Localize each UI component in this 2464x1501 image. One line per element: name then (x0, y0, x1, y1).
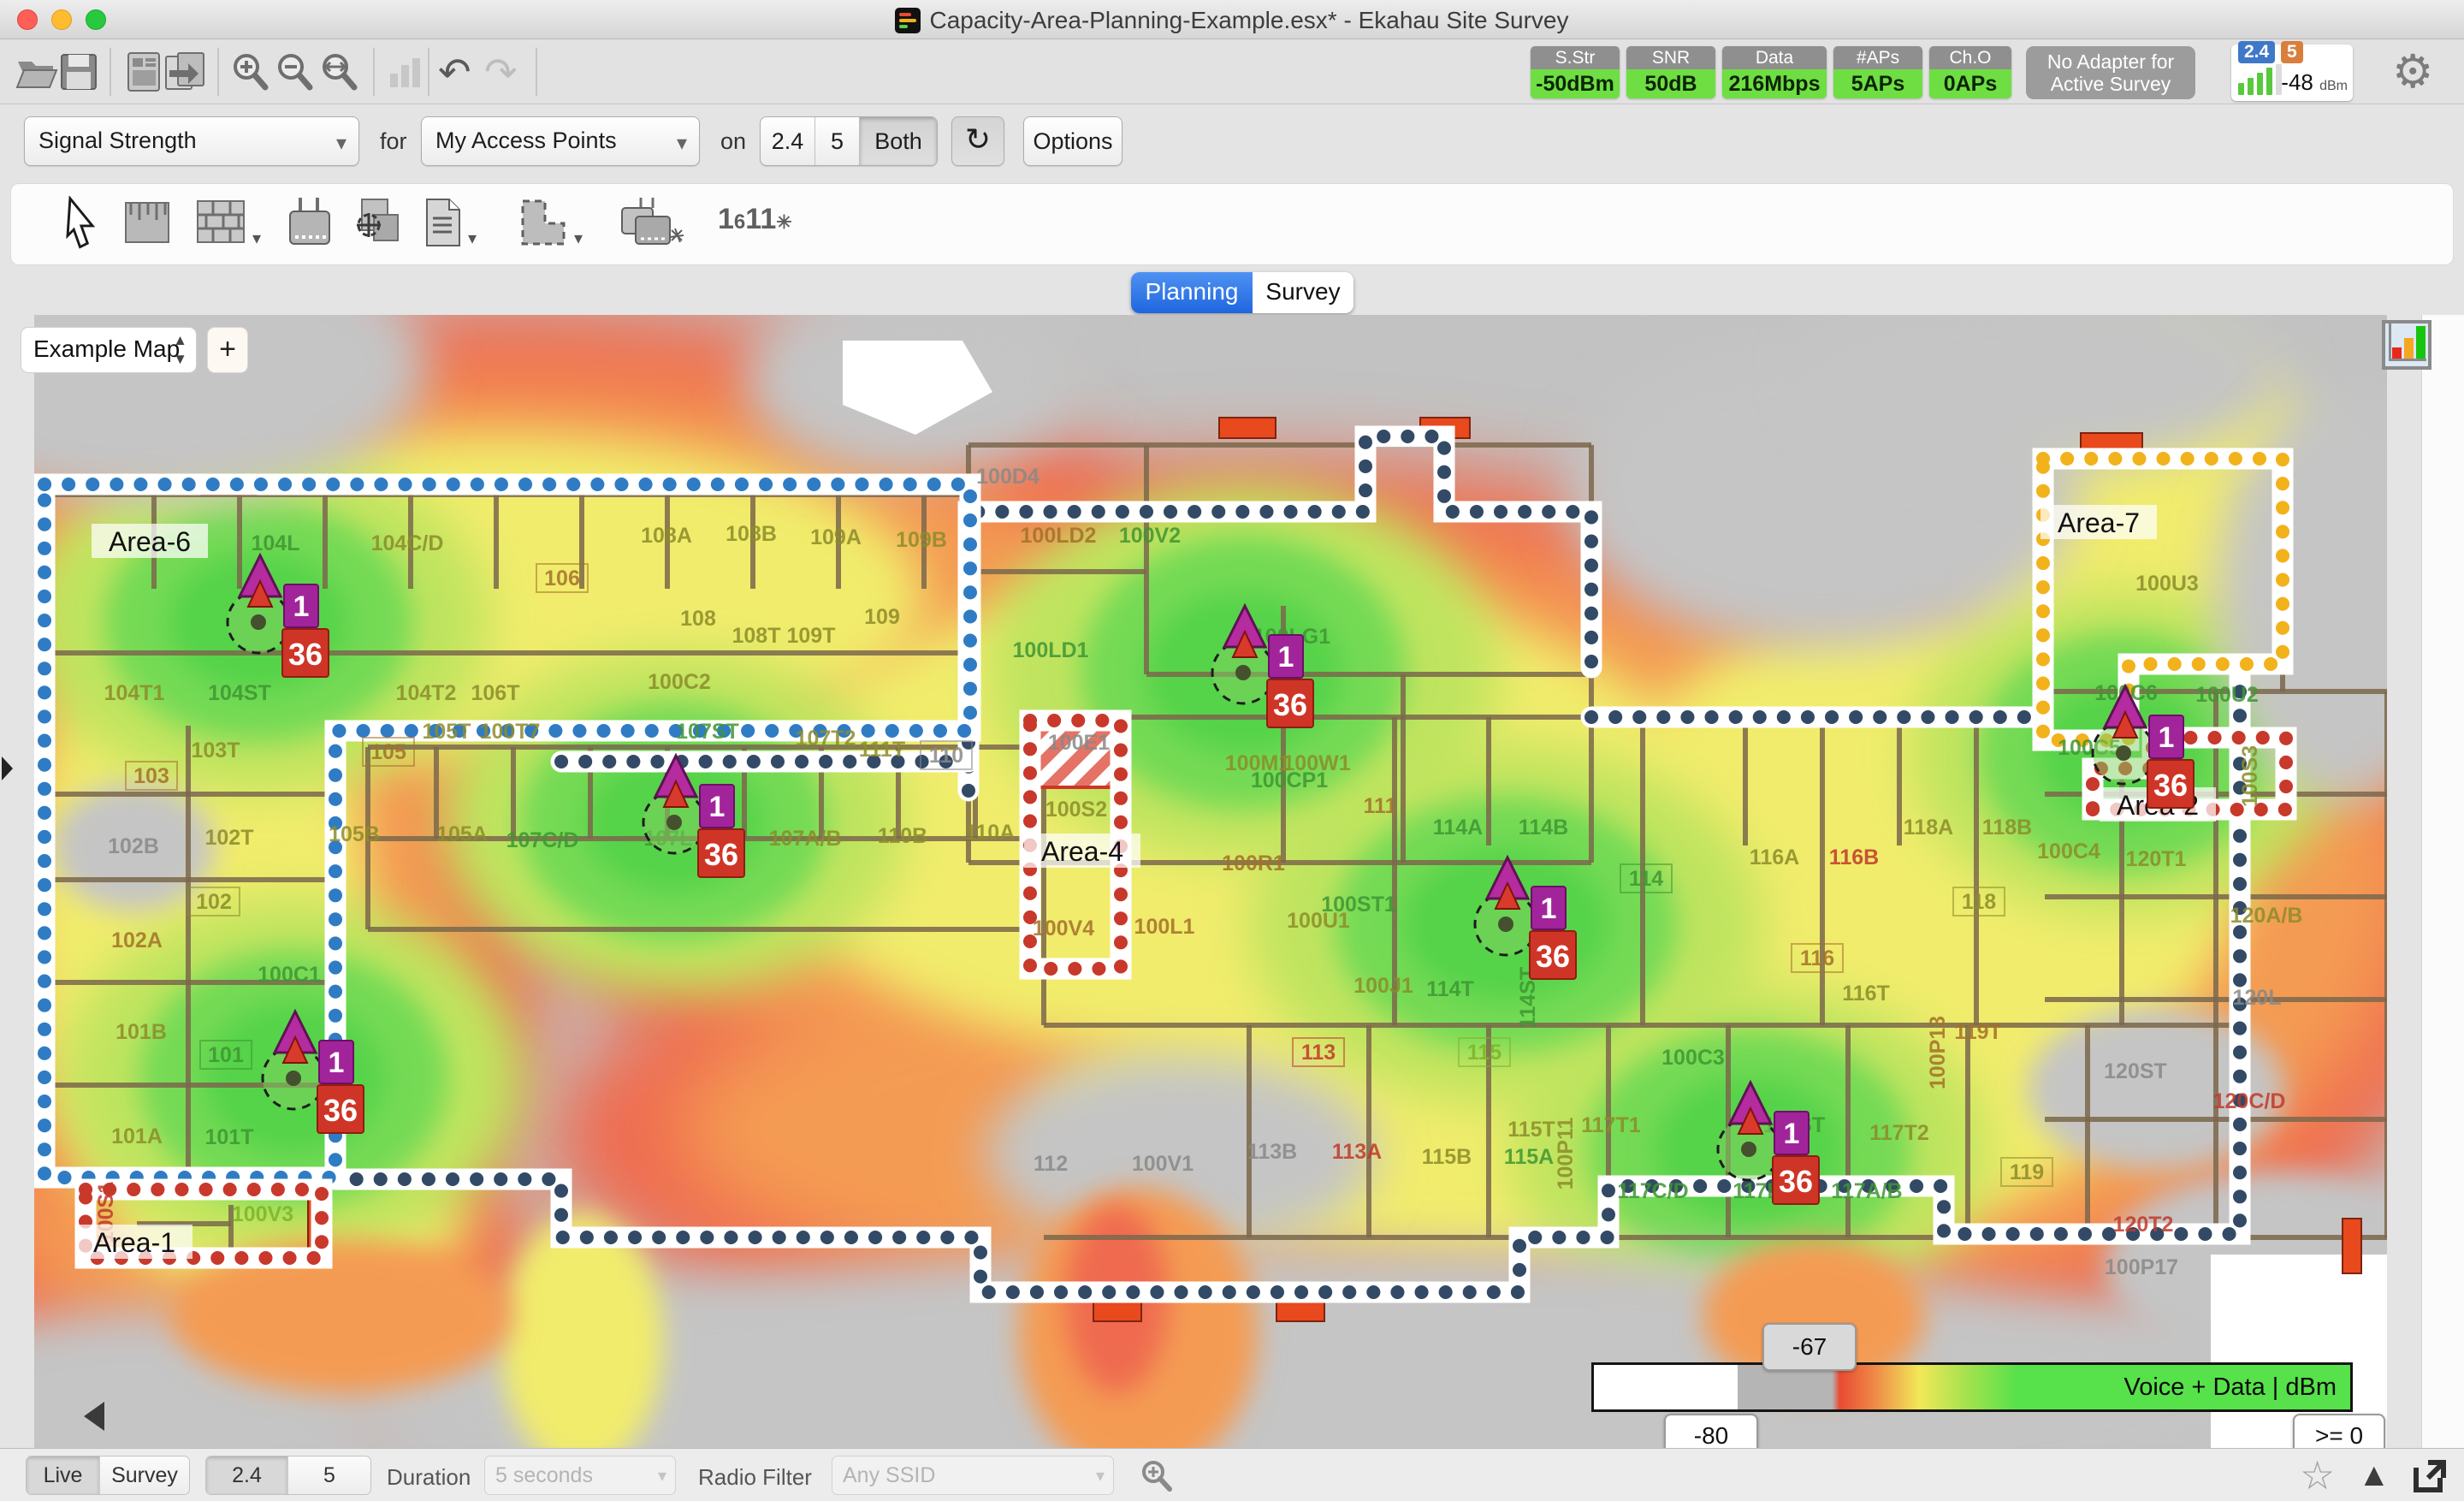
tab-planning[interactable]: Planning (1131, 272, 1253, 313)
room-label: 113B (1247, 1140, 1297, 1164)
room-label: 104T2 (396, 681, 457, 705)
room-label: 100V4 (1033, 917, 1094, 940)
room-label: 115A (1504, 1145, 1554, 1169)
band-both-button[interactable]: Both (860, 117, 937, 165)
room-label: 109B (896, 528, 947, 552)
room-label: 102 (196, 890, 232, 914)
room-label: 114 (1629, 867, 1663, 891)
room-label: 107A/B (769, 827, 842, 851)
ap-count-badge: 1 (709, 791, 726, 823)
room-label: 106T (471, 681, 520, 705)
on-label: on (720, 128, 746, 155)
room-label: 100P13 (1926, 1016, 1950, 1089)
room-label: 106 (544, 567, 580, 590)
room-label: 116T (1842, 982, 1890, 1006)
room-label: 120T2 (2113, 1213, 2174, 1237)
source-select[interactable]: My Access Points▾ (421, 116, 700, 166)
room-label: 100T7 (480, 720, 541, 744)
collapse-panel-icon[interactable]: ▲ (2358, 1457, 2390, 1494)
app-icon (895, 8, 921, 33)
tab-survey[interactable]: Survey (1253, 272, 1353, 313)
map-statistics-button[interactable] (2382, 320, 2431, 370)
room-label: 120L (2233, 986, 2282, 1010)
note-tool-icon[interactable]: ▾ (422, 196, 463, 251)
room-label: 105A (436, 822, 488, 846)
room-label: 100D4 (976, 465, 1039, 489)
room-label: 108T (732, 624, 781, 648)
ap-placement-tool-icon[interactable] (350, 196, 401, 251)
room-label: 113 (1301, 1041, 1336, 1065)
legend-color-scale[interactable]: Voice + Data | dBm (1591, 1362, 2353, 1412)
room-label: 100V2 (1119, 524, 1181, 548)
room-label: 100S2 (1045, 798, 1107, 822)
view-tabs: Planning Survey (1131, 272, 1353, 313)
main-toolbar: ↶ ↷ S.Str-50dBm SNR50dB Data216Mbps #APs… (0, 39, 2464, 104)
legend-title: Voice + Data | dBm (2123, 1373, 2337, 1401)
room-label: 108B (726, 522, 777, 546)
room-label: 100C1 (258, 963, 321, 987)
room-label: 100LD1 (1013, 638, 1089, 662)
room-label: 100L1 (1134, 915, 1195, 939)
room-label: 103T (192, 739, 240, 762)
room-label: 100C2 (648, 670, 711, 694)
import-export-icon[interactable] (163, 50, 207, 94)
ap-count-badge: 1 (2159, 721, 2175, 754)
room-label: 100V1 (1132, 1152, 1193, 1176)
room-label: 117T1 (1581, 1113, 1641, 1137)
ap-count-badge: 1 (1541, 893, 1557, 925)
ap-channel-badge: 36 (323, 1093, 358, 1128)
room-label: 105T (423, 720, 471, 744)
duration-label: Duration (387, 1464, 471, 1491)
wifi-meter: 2.4 5 -48 dBm (2231, 44, 2353, 101)
no-adapter-notice: No Adapter for Active Survey (2026, 46, 2195, 99)
floor-plan-map[interactable]: 104L104C/D106108A108B109A109B108108T109T… (34, 315, 2387, 1448)
room-label: 118 (1962, 890, 1996, 914)
zoom-fit-icon[interactable] (317, 50, 361, 94)
visualization-bar: Signal Strength▾ for My Access Points▾ o… (0, 104, 2464, 178)
bottom-bar: Live Survey 2.4 5 Duration 5 seconds▾ Ra… (0, 1448, 2464, 1501)
room-label: 103 (133, 764, 169, 788)
room-label: 100S3 (2238, 745, 2262, 807)
band-5-button[interactable]: 5 (815, 117, 860, 165)
room-label: 109 (864, 605, 900, 629)
export-share-icon[interactable] (2409, 1456, 2449, 1495)
room-label: 100M1 (1225, 751, 1291, 775)
ap-count-badge: 1 (293, 590, 310, 623)
room-label: 100V3 (232, 1202, 293, 1226)
room-label: 109A (810, 525, 862, 549)
ap-channel-badge: 36 (1536, 939, 1570, 974)
area-label-area-4: Area-4 (1041, 836, 1123, 867)
room-label: 105B (329, 822, 380, 846)
legend-mid-handle[interactable]: -67 (1762, 1323, 1857, 1371)
area-label-area-1: Area-1 (93, 1227, 175, 1258)
room-label: 117A/B (1831, 1179, 1902, 1203)
room-label: 101 (208, 1043, 244, 1067)
room-label: 104L (252, 531, 300, 555)
bottom-band-2-4-button[interactable]: 2.4 (206, 1457, 288, 1494)
room-label: 114A (1433, 816, 1483, 839)
undo-icon[interactable]: ↶ (438, 50, 483, 94)
room-label: 107T2 (796, 727, 856, 750)
room-label: 112 (1034, 1152, 1068, 1176)
room-label: 100P17 (2105, 1255, 2178, 1279)
room-label: 100U3 (2135, 572, 2199, 596)
room-label: 105 (370, 740, 406, 764)
rssi-value: -48 dBm (2281, 69, 2348, 96)
room-label: 101B (115, 1020, 167, 1044)
room-label: 110B (878, 824, 927, 848)
options-button[interactable]: Options (1023, 116, 1122, 166)
room-label: 117T2 (1869, 1121, 1929, 1145)
room-label: 114T (1426, 977, 1474, 1001)
wall-tool-icon[interactable]: ▾ (196, 196, 247, 251)
status-data-rate: Data216Mbps (1722, 46, 1827, 98)
map-corner-arrow-icon (84, 1402, 104, 1431)
visualization-select[interactable]: Signal Strength▾ (24, 116, 359, 166)
room-label: 118B (1982, 816, 2032, 839)
room-label: 100C3 (1661, 1046, 1725, 1070)
room-label: 114B (1519, 816, 1568, 839)
ap-count-badge: 1 (1784, 1118, 1800, 1150)
room-label: 107ST (676, 720, 739, 744)
room-label: 120ST (2104, 1059, 2167, 1083)
ap-channel-badge: 36 (288, 637, 323, 672)
refresh-button[interactable]: ↻ (951, 116, 1004, 166)
survey-mode-button[interactable]: Survey (100, 1457, 189, 1494)
settings-gear-icon[interactable]: ⚙ (2392, 44, 2433, 99)
room-label: 100U2 (2195, 683, 2259, 707)
room-label: 119 (2010, 1160, 2044, 1184)
live-mode-button[interactable]: Live (27, 1457, 100, 1494)
room-label: 120T1 (2126, 847, 2187, 871)
room-label: 120A/B (2230, 904, 2303, 928)
room-label: 116A (1750, 845, 1799, 869)
room-label: 118A (1904, 816, 1953, 839)
measure-tool-icon[interactable] (122, 196, 172, 251)
room-label: 102A (111, 928, 163, 952)
room-label: 104T1 (104, 681, 165, 705)
room-label: 101A (111, 1124, 163, 1148)
area-label-area-6: Area-6 (109, 526, 191, 557)
room-label: 100P11 (1554, 1118, 1578, 1190)
zoom-live-icon[interactable] (1138, 1457, 1176, 1495)
access-point-tool-icon[interactable] (285, 196, 335, 251)
save-project-icon[interactable] (56, 50, 101, 94)
area-tool-icon[interactable]: ▾ (516, 196, 569, 251)
room-label: 111 (1364, 794, 1397, 818)
room-label: 109T (787, 624, 836, 648)
reports-icon[interactable] (121, 50, 166, 94)
ap-channel-badge: 36 (1779, 1164, 1813, 1199)
band-5-chip: 5 (2281, 41, 2303, 63)
duration-select: 5 seconds▾ (484, 1456, 676, 1495)
room-label: 113A (1332, 1140, 1382, 1164)
room-label: 104C/D (371, 531, 444, 555)
room-label: 100LD2 (1021, 524, 1097, 548)
room-label: 115 (1467, 1041, 1501, 1065)
band-2-4-button[interactable]: 2.4 (761, 117, 815, 165)
room-label: 102B (108, 834, 159, 858)
area-label-area-7: Area-7 (2058, 507, 2140, 538)
room-label: 115B (1422, 1145, 1472, 1169)
ap-channel-badge: 36 (2153, 768, 2188, 803)
room-label: 111T (859, 738, 905, 762)
for-label: for (380, 128, 407, 155)
room-label: 110 (929, 744, 963, 768)
statistics-icon (383, 50, 428, 94)
ap-channel-badge: 36 (1273, 687, 1307, 722)
title-bar: Capacity-Area-Planning-Example.esx* - Ek… (0, 0, 2464, 39)
redo-icon: ↷ (484, 50, 529, 94)
room-label: 101T (205, 1125, 254, 1149)
right-panel-gutter[interactable] (2421, 315, 2464, 1448)
ap-count-badge: 1 (329, 1047, 345, 1079)
add-map-button[interactable]: + (207, 327, 248, 373)
room-label: 100J1 (1353, 974, 1413, 998)
auto-planner-tool-icon[interactable] (615, 196, 687, 251)
room-label: 108 (680, 607, 716, 631)
window-title: Capacity-Area-Planning-Example.esx* - Ek… (0, 7, 2464, 34)
left-panel-expander-icon[interactable] (2, 756, 13, 780)
radio-filter-label: Radio Filter (698, 1464, 812, 1491)
room-label: 100ST1 (1321, 893, 1396, 917)
room-label: 100R1 (1222, 851, 1285, 875)
room-label: 108A (641, 524, 692, 548)
room-label: 120C/D (2213, 1089, 2286, 1113)
tools-panel: ▾ ▾ ▾ 1611✳ (10, 183, 2454, 265)
status-channel-overlap: Ch.O0APs (1929, 46, 2011, 98)
room-label: 100E1 (1048, 731, 1110, 755)
radio-filter-select: Any SSID▾ (832, 1456, 1114, 1495)
zoom-out-icon[interactable] (272, 50, 317, 94)
room-label: 117C/D (1617, 1179, 1688, 1203)
band-2-4-chip: 2.4 (2238, 41, 2275, 63)
room-label: 107C/D (506, 828, 579, 852)
open-project-icon[interactable] (14, 50, 58, 94)
room-label: 102T (205, 826, 254, 850)
bottom-band-5-button[interactable]: 5 (288, 1457, 370, 1494)
room-label: 104ST (208, 681, 271, 705)
status-signal-strength: S.Str-50dBm (1531, 46, 1620, 98)
ap-channel-badge: 36 (704, 837, 738, 872)
select-tool-icon[interactable] (62, 196, 100, 251)
room-label: 100W1 (1282, 751, 1350, 775)
room-label: 116B (1829, 845, 1879, 869)
room-label: 100C4 (2037, 839, 2100, 863)
zoom-in-icon[interactable] (228, 50, 272, 94)
room-label: 116 (1800, 946, 1834, 970)
ap-count-badge: 1 (1278, 641, 1294, 673)
status-snr: SNR50dB (1626, 46, 1715, 98)
room-label: 115T (1507, 1118, 1555, 1142)
room-label: 110A (965, 821, 1015, 845)
map-selector[interactable]: Example Map ▲▼ (21, 327, 197, 373)
status-ap-count: #APs5APs (1833, 46, 1922, 98)
channel-planner-tool-icon[interactable]: 1611✳ (718, 203, 792, 258)
favorite-star-icon[interactable]: ☆ (2300, 1452, 2335, 1498)
room-label: 119T (1954, 1020, 2002, 1044)
